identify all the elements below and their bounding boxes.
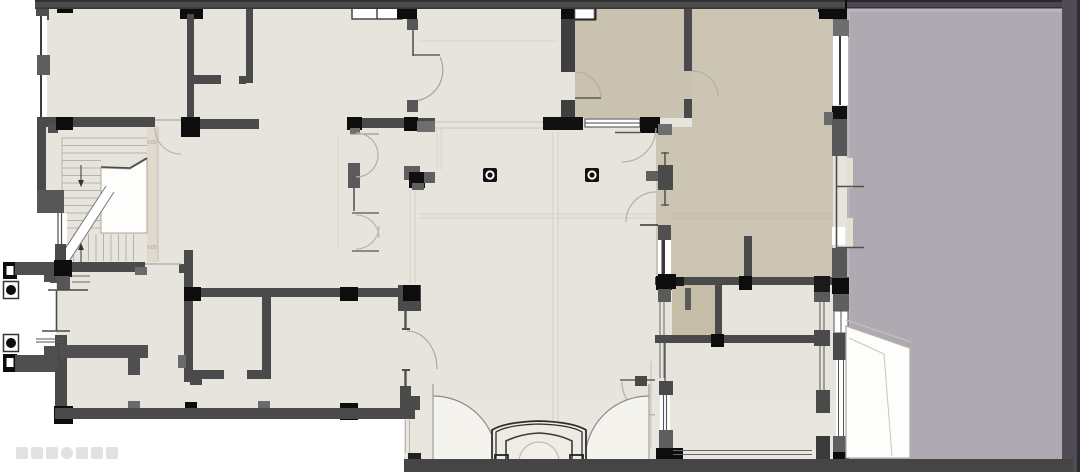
svg-text:0.00: 0.00 — [147, 245, 157, 251]
svg-text:0.00: 0.00 — [147, 140, 157, 146]
